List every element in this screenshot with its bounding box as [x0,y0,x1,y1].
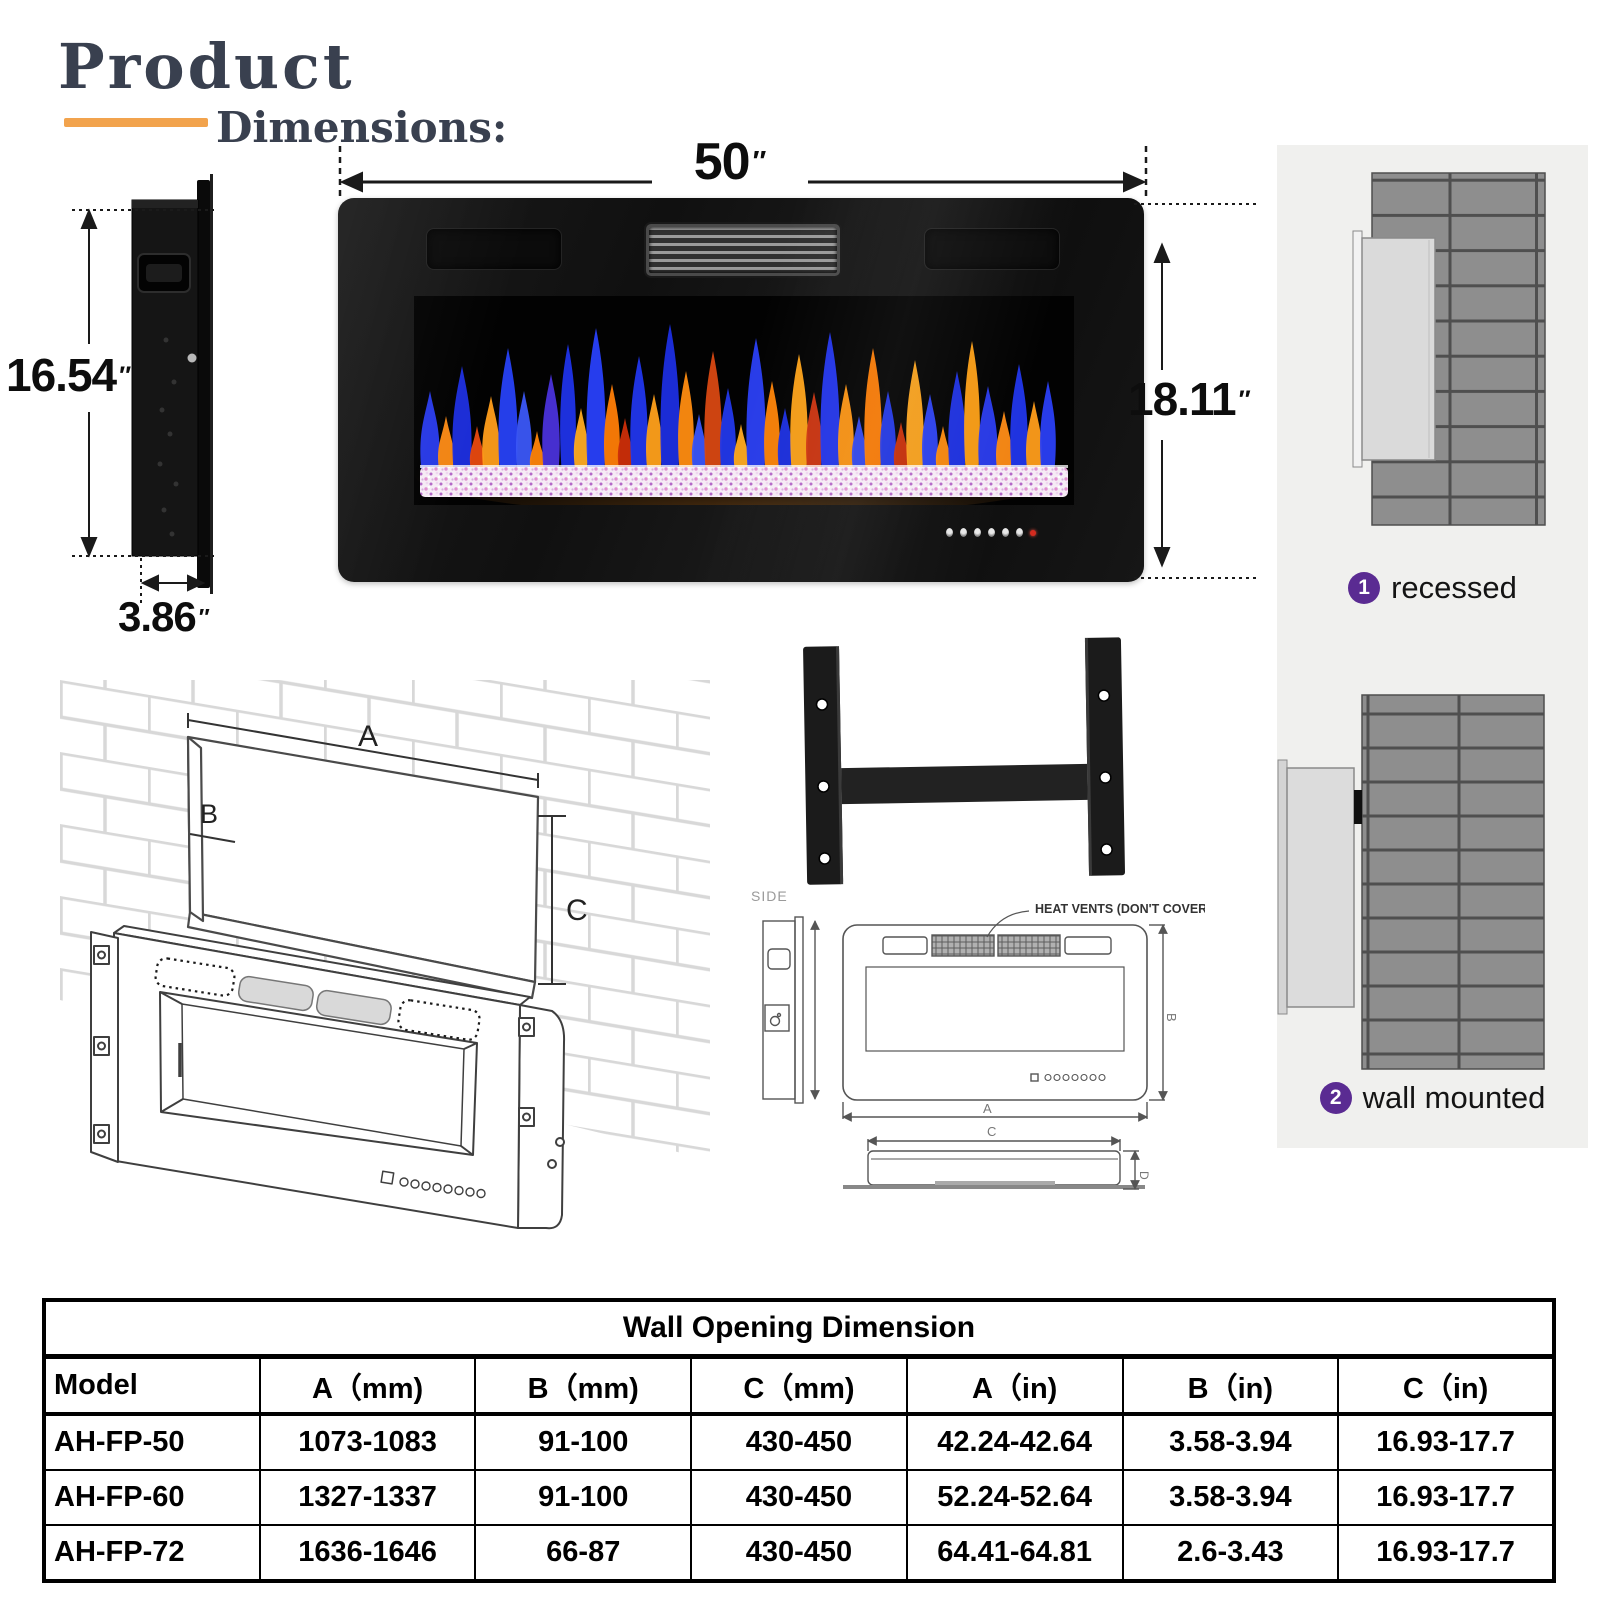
page-title: Product [58,30,354,103]
mount-bracket-icon [1354,790,1362,824]
tech-dim-a: A [983,1101,992,1116]
col-header-a-in: A（in) [907,1357,1123,1415]
col-header-c-in: C（in) [1338,1357,1554,1415]
page-subtitle: Dimensions: [216,103,507,152]
wall-mounted-label: 2 wall mounted [1277,1075,1588,1120]
col-header-b-in: B（in) [1123,1357,1339,1415]
table-title: Wall Opening Dimension [44,1300,1554,1357]
col-header-a-mm: A（mm) [260,1357,476,1415]
screw-icon [188,354,197,363]
table-row: AH-FP-50 1073-1083 91-100 430-450 42.24-… [44,1414,1554,1470]
front-width-dimension: 50″ [655,136,805,188]
tech-dim-d: D [1137,1171,1151,1180]
opening-dim-c: C [566,894,588,927]
wall-opening-diagram: A B C [60,680,710,1240]
option-1-badge: 1 [1348,572,1380,604]
heat-vent-hatched [998,935,1060,956]
wall-opening-dimension-table: Wall Opening Dimension Model A（mm) B（mm)… [42,1298,1556,1583]
glass-sheen [338,198,1144,582]
fireplace-front-photo [338,198,1144,582]
installation-options-panel: 1 recessed 2 wall mounted [1277,145,1588,1148]
col-header-c-mm: C（mm) [691,1357,907,1415]
side-depth-dimension: 3.86″ [118,596,210,638]
wall-mounted-unit [1287,768,1354,1007]
table-header-row: Model A（mm) B（mm) C（mm) A（in) B（in) C（in… [44,1357,1554,1415]
heat-vent-hatched [932,935,994,956]
brick-wall [1362,695,1544,1069]
technical-drawings: SIDE [735,855,1205,1205]
tech-dim-c: C [987,1124,996,1139]
recessed-label: 1 recessed [1277,565,1588,610]
opening-dim-b: B [200,799,218,829]
recessed-unit [1362,238,1435,460]
option-2-badge: 2 [1320,1082,1352,1114]
tech-dim-b: B [1164,1013,1179,1022]
col-header-model: Model [44,1357,260,1415]
wall-mounted-diagram [1277,680,1588,1075]
table-row: AH-FP-60 1327-1337 91-100 430-450 52.24-… [44,1470,1554,1525]
title-underline [64,118,208,127]
side-height-dimension: 16.54″ [6,352,131,398]
col-header-b-mm: B（mm) [475,1357,691,1415]
model-cell: AH-FP-50 [44,1414,260,1470]
model-cell: AH-FP-72 [44,1525,260,1581]
front-height-dimension: 18.11″ [1128,376,1251,422]
side-view-photo [118,172,218,596]
recessed-diagram [1277,145,1588,565]
heat-vent-note: HEAT VENTS (DON'T COVER) SIDE [1035,902,1205,916]
table-row: AH-FP-72 1636-1646 66-87 430-450 64.41-6… [44,1525,1554,1581]
product-dimensions-page: Product Dimensions: [0,0,1600,1600]
table-title-row: Wall Opening Dimension [44,1300,1554,1357]
model-cell: AH-FP-60 [44,1470,260,1525]
side-view-label: SIDE [751,888,788,904]
opening-dim-a: A [358,720,378,753]
